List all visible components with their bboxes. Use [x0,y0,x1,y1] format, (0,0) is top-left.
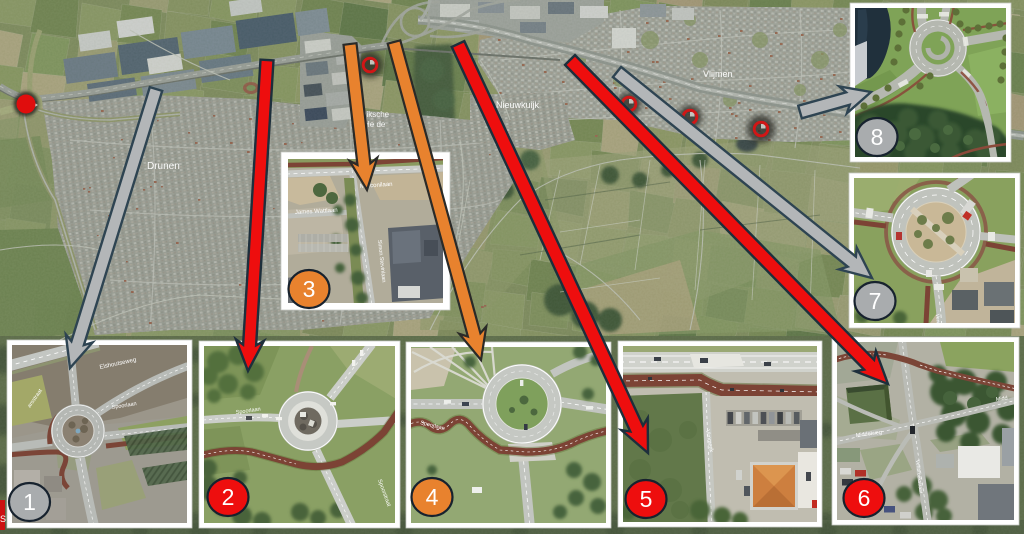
svg-text:Drunen: Drunen [147,161,180,172]
svg-text:4: 4 [426,484,439,510]
svg-text:8: 8 [871,124,884,150]
svg-text:5: 5 [640,486,653,512]
svg-text:3: 3 [303,276,316,302]
svg-text:2: 2 [222,484,235,510]
svg-text:Nieuwkuijk: Nieuwkuijk [496,100,540,110]
svg-text:Vlijmen: Vlijmen [703,69,733,79]
svg-text:6: 6 [858,485,871,511]
svg-text:1: 1 [23,489,36,515]
svg-text:7: 7 [869,288,882,314]
svg-text:S: S [0,514,6,524]
